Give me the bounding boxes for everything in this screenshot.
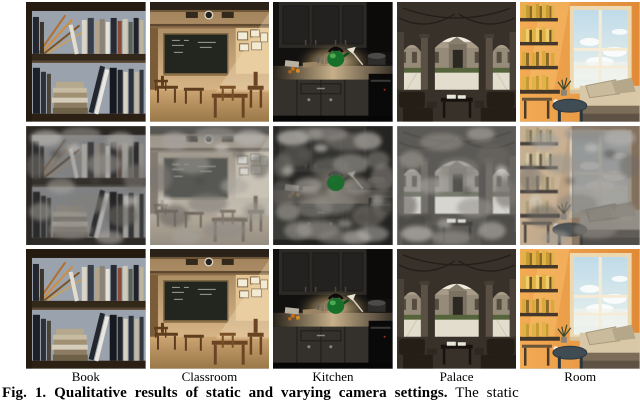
palace-degraded-scene-image [397, 126, 517, 246]
image-room-static [520, 2, 640, 122]
image-book-static [26, 2, 146, 122]
image-book-varying-ours [26, 249, 146, 369]
column-labels: Book Classroom Kitchen Palace Room [26, 369, 640, 385]
figure-caption-bold: Fig. 1. Qualitative results of static an… [2, 385, 448, 401]
palace-scene-image [397, 249, 517, 369]
figure-caption: Fig. 1. Qualitative results of static an… [2, 385, 638, 402]
paper-figure-1: Static Varying Varying w\ ours [0, 0, 640, 402]
image-room-varying [520, 126, 640, 246]
room-scene-image [520, 249, 640, 369]
column-label-palace: Palace [397, 369, 517, 385]
image-book-varying [26, 126, 146, 246]
image-kitchen-varying-ours [273, 249, 393, 369]
bookshelf-scene-image [26, 249, 146, 369]
row-labels: Static Varying Varying w\ ours [0, 2, 26, 369]
column-label-kitchen: Kitchen [273, 369, 393, 385]
classroom-scene-image [150, 2, 270, 122]
image-room-varying-ours [520, 249, 640, 369]
image-kitchen-static [273, 2, 393, 122]
classroom-scene-image [150, 249, 270, 369]
kitchen-degraded-scene-image [273, 126, 393, 246]
palace-scene-image [397, 2, 517, 122]
bookshelf-scene-image [26, 2, 146, 122]
image-classroom-static [150, 2, 270, 122]
image-palace-varying [397, 126, 517, 246]
figure-caption-rest: The static [448, 385, 519, 401]
room-scene-image [520, 2, 640, 122]
bookshelf-degraded-scene-image [26, 126, 146, 246]
image-palace-varying-ours [397, 249, 517, 369]
image-classroom-varying-ours [150, 249, 270, 369]
image-kitchen-varying [273, 126, 393, 246]
column-label-book: Book [26, 369, 146, 385]
column-label-room: Room [520, 369, 640, 385]
kitchen-scene-image [273, 2, 393, 122]
room-degraded-scene-image [520, 126, 640, 246]
column-label-classroom: Classroom [150, 369, 270, 385]
kitchen-scene-image [273, 249, 393, 369]
image-palace-static [397, 2, 517, 122]
image-classroom-varying [150, 126, 270, 246]
image-grid [26, 2, 640, 369]
classroom-degraded-scene-image [150, 126, 270, 246]
